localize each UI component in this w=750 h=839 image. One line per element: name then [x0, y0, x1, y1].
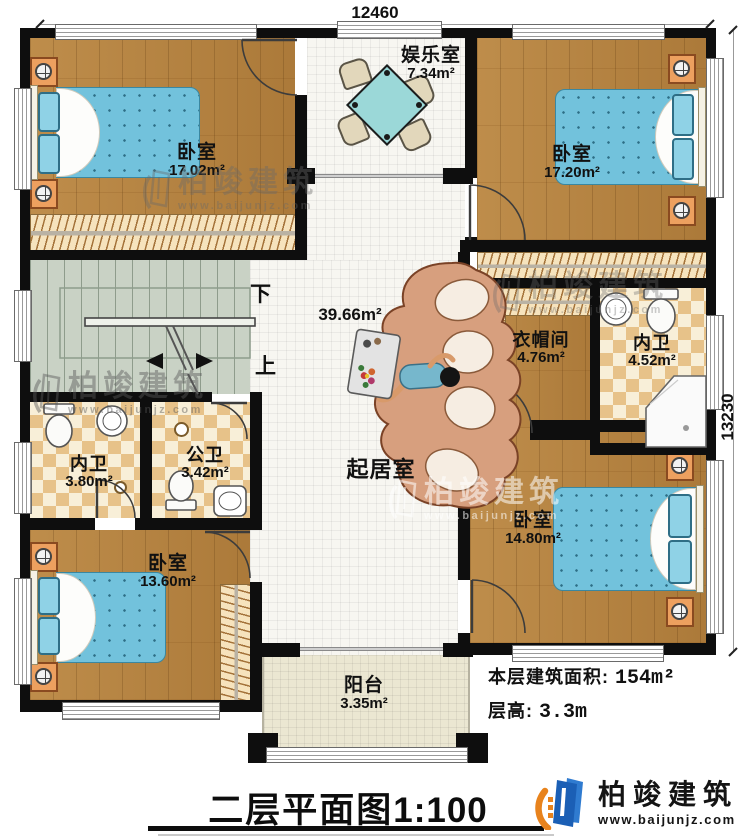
company-logo-icon [534, 776, 590, 830]
wardrobe-bedroom-top-right [477, 252, 708, 280]
lamp-icon [35, 185, 52, 202]
wardrobe-cloakroom-top [470, 288, 592, 316]
stairs-down-label: 下 [250, 278, 271, 308]
window [706, 58, 724, 198]
stairs [30, 258, 250, 394]
label-bedroom-top-right: 卧室 17.20m² [512, 144, 632, 182]
pillow [38, 92, 60, 132]
wall [135, 518, 262, 530]
nightstand [666, 597, 694, 627]
label-balcony: 阳台 3.35m² [304, 675, 424, 713]
label-bedroom-bottom-left: 卧室 13.60m² [108, 553, 228, 591]
pillow [38, 617, 60, 655]
lamp-icon [673, 202, 690, 219]
label-living-name: 起居室 [321, 458, 441, 483]
wall [460, 240, 716, 252]
title-underline-shadow [158, 834, 554, 836]
bed-headboard [696, 485, 704, 593]
label-bedroom-top-left: 卧室 17.02m² [137, 142, 257, 180]
wall [20, 518, 95, 530]
label-cloakroom: 衣帽间 4.76m² [481, 330, 601, 367]
nightstand [668, 54, 696, 84]
window [62, 702, 220, 720]
floor-height-note: 层高: 3.3m [488, 697, 587, 724]
wall [590, 443, 716, 455]
dimension-top-label: 12460 [325, 3, 425, 23]
wall [458, 252, 470, 580]
dimension-right-line [733, 30, 734, 652]
wardrobe-bedroom-top-left [30, 214, 297, 252]
bed-headboard [698, 87, 706, 187]
wall [250, 582, 262, 712]
balcony-railing [266, 747, 468, 763]
label-ensuite-left: 内卫 3.80m² [29, 454, 149, 491]
company-logo: 柏竣建筑 www.baijunjz.com [534, 776, 738, 830]
nightstand [30, 542, 58, 572]
window [14, 88, 32, 190]
pillow [672, 94, 694, 136]
nightstand [666, 451, 694, 481]
window [512, 24, 665, 40]
nightstand [668, 196, 696, 226]
window [337, 21, 442, 39]
wall [287, 168, 315, 184]
lamp-icon [35, 668, 52, 685]
window [14, 290, 32, 362]
dimension-right-label: 13230 [718, 389, 738, 445]
wall [262, 643, 300, 657]
label-living-area: 39.66m² [290, 305, 410, 324]
window [55, 24, 257, 40]
pillow [38, 134, 60, 174]
lamp-icon [671, 603, 688, 620]
pillow [668, 494, 692, 538]
label-ensuite-right: 内卫 4.52m² [592, 333, 712, 370]
wall [530, 420, 716, 432]
label-public-bath: 公卫 3.42m² [145, 445, 265, 482]
title-underline [148, 826, 544, 831]
window [14, 578, 32, 685]
nightstand [30, 662, 58, 692]
wall [460, 278, 716, 288]
wall [20, 250, 307, 260]
lamp-icon [671, 457, 688, 474]
pillow [38, 577, 60, 615]
window [512, 645, 664, 662]
pillow [668, 540, 692, 584]
label-entertainment: 娱乐室 7.34m² [371, 45, 491, 83]
pillow [672, 138, 694, 180]
floor-plan-canvas: 12460 13230 [0, 0, 750, 839]
wall [443, 643, 473, 657]
wall [20, 392, 212, 402]
window [706, 460, 724, 634]
nightstand [30, 179, 58, 209]
lamp-icon [673, 60, 690, 77]
lamp-icon [35, 63, 52, 80]
floor-area-note: 本层建筑面积: 154m² [488, 663, 675, 690]
ceiling-light-icon [174, 422, 189, 437]
wardrobe-bedroom-bottom-left [220, 584, 252, 702]
nightstand [30, 57, 58, 87]
stairs-up-label: 上 [255, 350, 276, 380]
label-bedroom-bottom-right: 卧室 14.80m² [473, 510, 593, 548]
lamp-icon [35, 548, 52, 565]
